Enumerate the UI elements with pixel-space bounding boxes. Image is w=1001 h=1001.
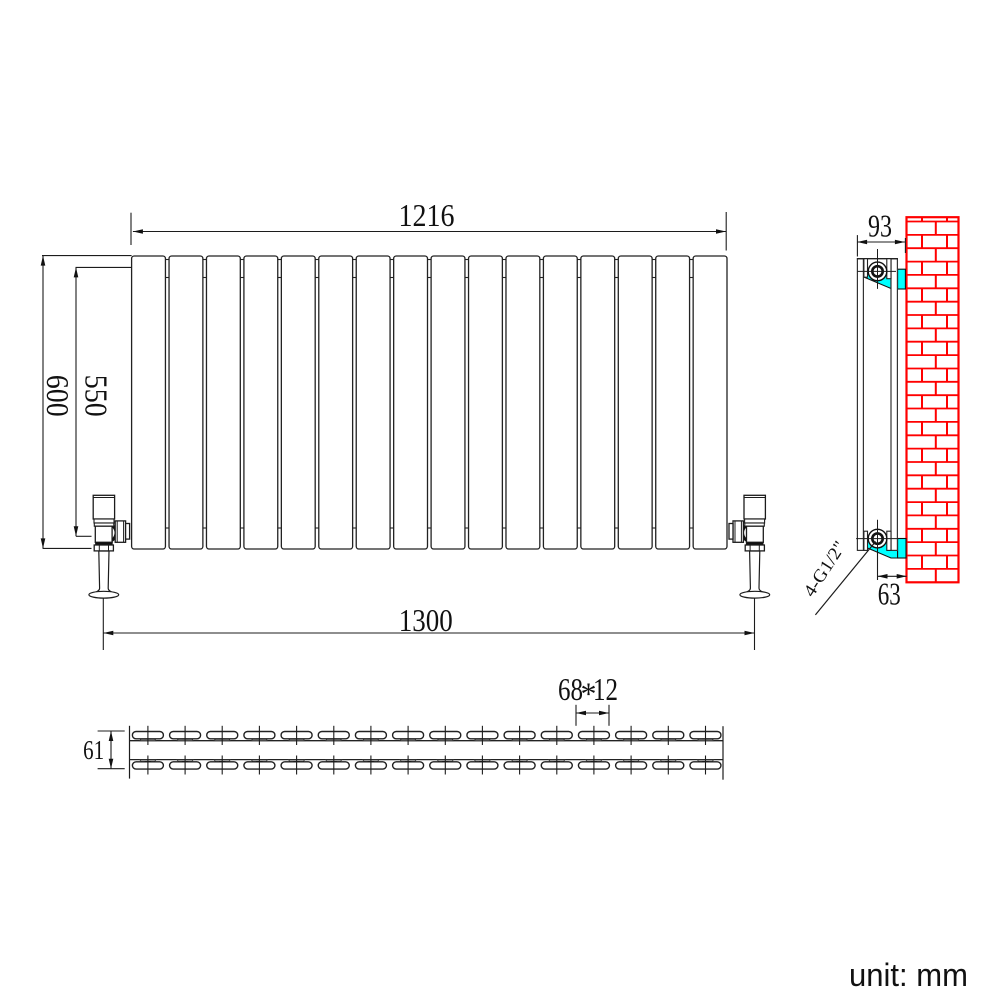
svg-text:12: 12 [593, 671, 618, 707]
svg-text:1300: 1300 [399, 602, 453, 638]
svg-text:93: 93 [868, 208, 892, 244]
svg-text:unit: mm: unit: mm [849, 957, 968, 993]
svg-text:600: 600 [40, 375, 76, 417]
svg-text:61: 61 [83, 735, 104, 765]
svg-text:4-G1/2": 4-G1/2" [799, 537, 850, 600]
svg-text:68: 68 [558, 671, 583, 707]
svg-text:550: 550 [79, 375, 115, 417]
svg-text:1216: 1216 [399, 197, 455, 233]
svg-text:63: 63 [878, 575, 901, 611]
